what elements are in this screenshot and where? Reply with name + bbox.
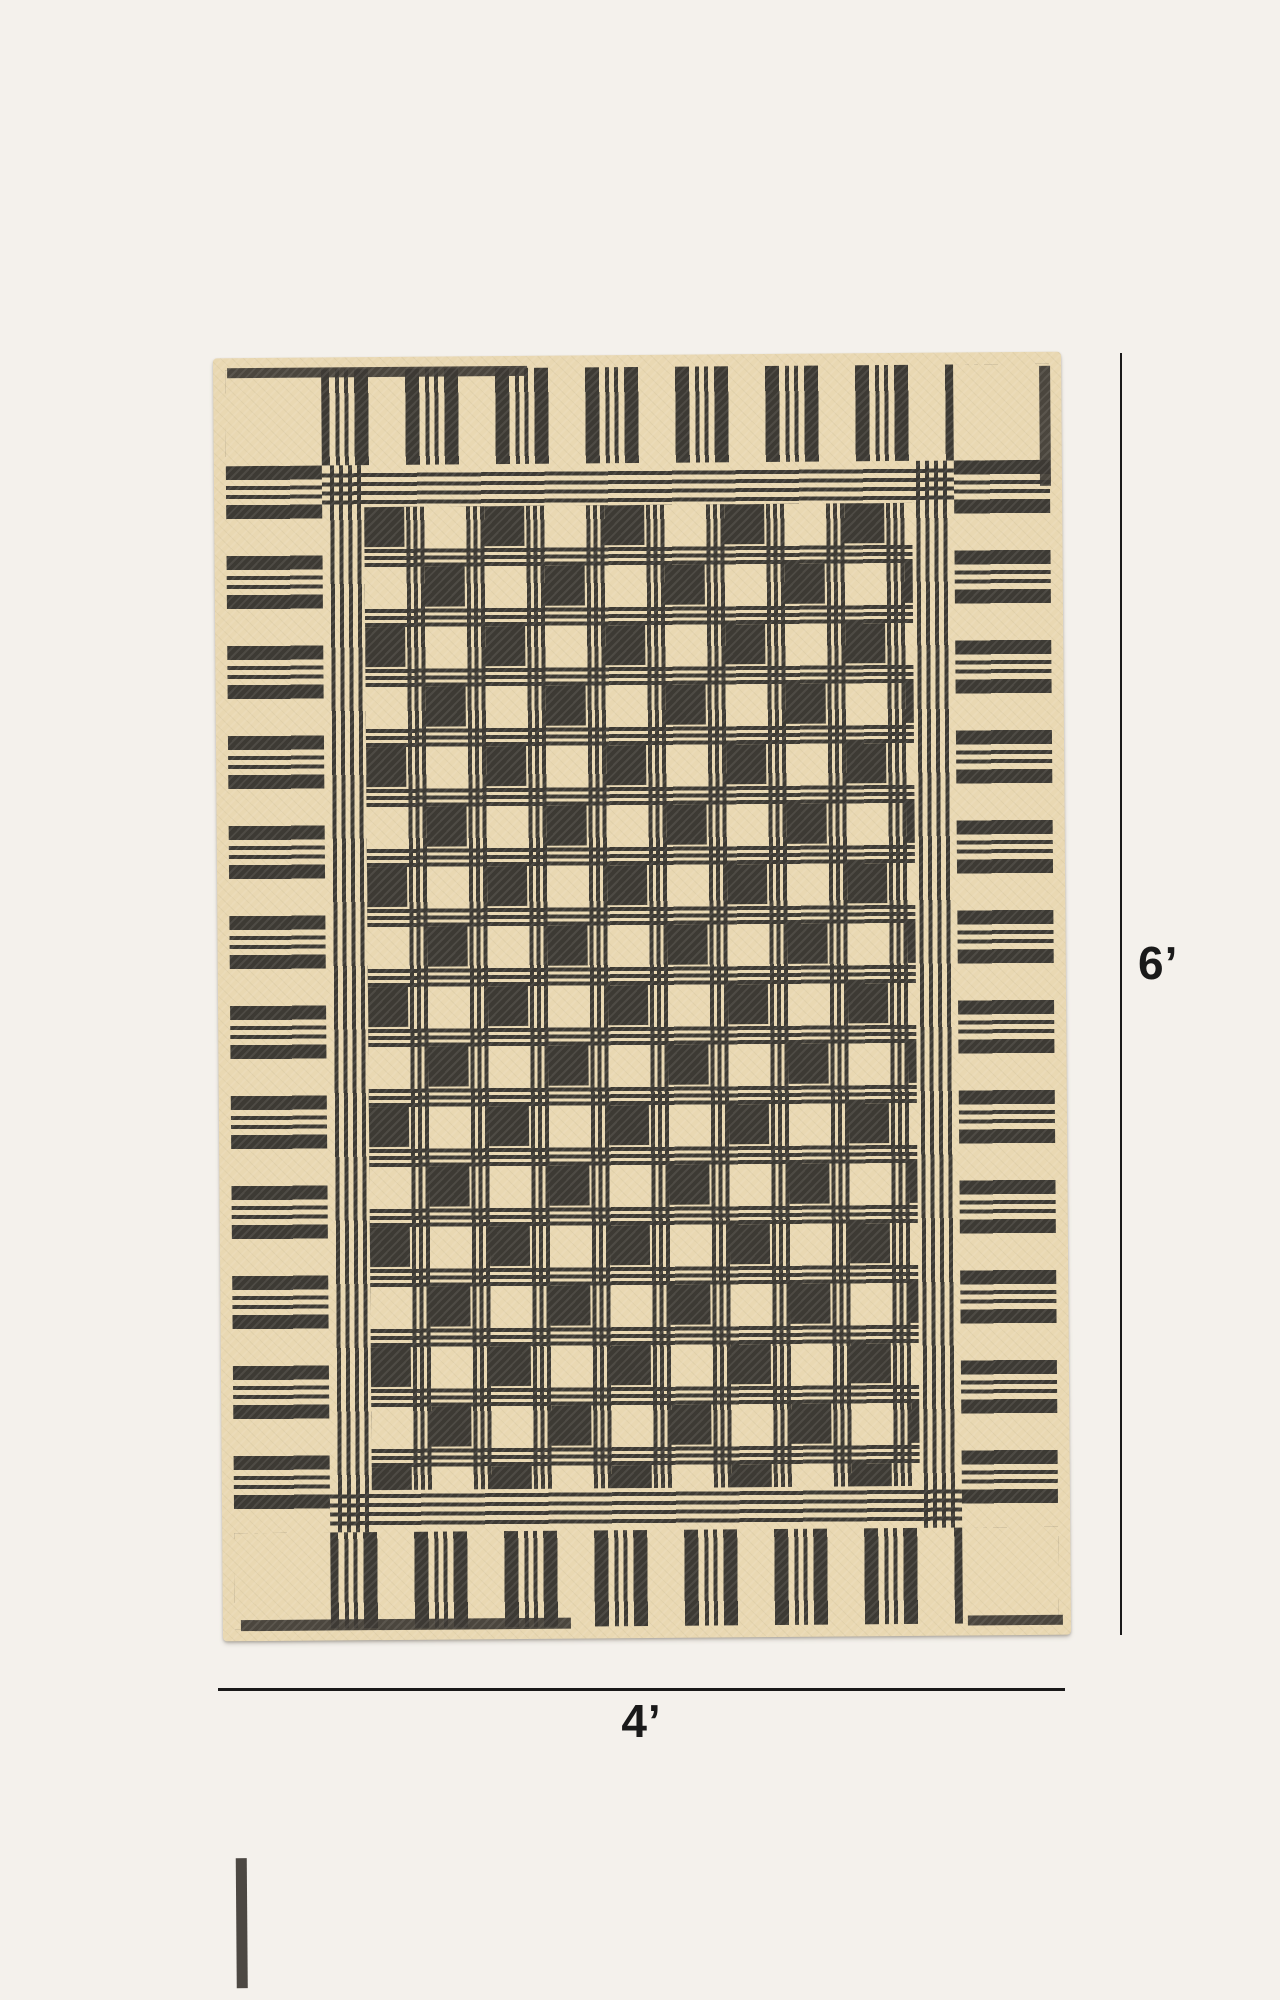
width-dimension-line — [218, 1688, 1065, 1691]
rug-edge-bar-bottom-right — [968, 1615, 1063, 1626]
rug-edge-bar-left-bottom — [236, 1858, 248, 1988]
rug-stripe-divider-bottom — [330, 1486, 962, 1529]
rug-plaid-field — [364, 503, 920, 1490]
rug-corner-block-top-right — [953, 364, 1050, 461]
rug-corner-block-bottom-right — [962, 1527, 1059, 1624]
rug-edge-bar-bottom-left — [241, 1618, 571, 1632]
width-dimension-label: 4’ — [218, 1696, 1065, 1747]
product-dimensions-figure: 6’ 4’ — [0, 0, 1280, 2000]
rug-border-bottom — [234, 1527, 1059, 1629]
rug-photo — [213, 352, 1071, 1642]
rug-border-left — [226, 465, 330, 1533]
height-dimension-line — [1120, 353, 1122, 1635]
rug-corner-block-top-left — [225, 370, 322, 467]
rug-stripe-divider-top — [322, 465, 954, 508]
rug-border-top — [225, 364, 1050, 466]
rug-edge-bar-top-right — [1039, 366, 1051, 486]
height-dimension-label: 6’ — [1138, 938, 1178, 989]
rug-corner-block-bottom-left — [234, 1532, 331, 1629]
rug-border-right — [954, 460, 1058, 1528]
